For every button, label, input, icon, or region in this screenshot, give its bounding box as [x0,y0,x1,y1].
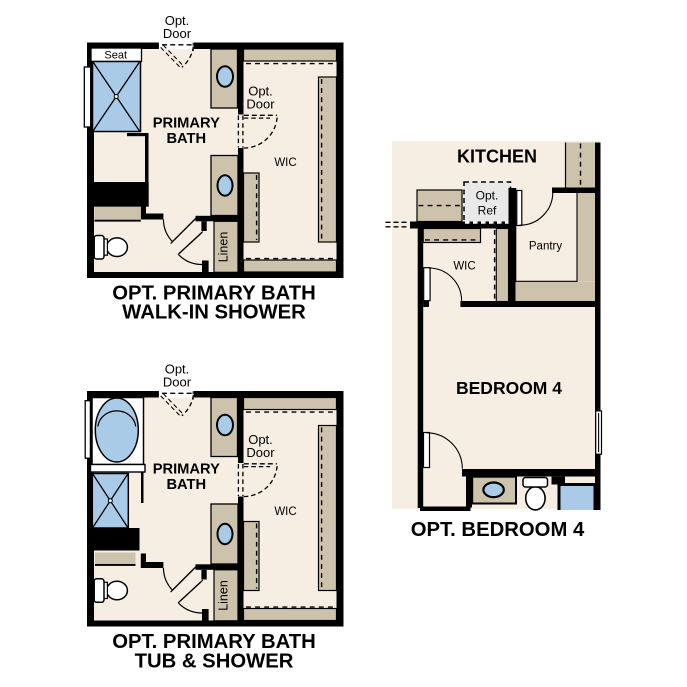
svg-text:BATH: BATH [166,131,206,147]
svg-text:PRIMARY: PRIMARY [153,115,220,131]
svg-text:WIC: WIC [453,260,475,272]
svg-text:OPT. BEDROOM 4: OPT. BEDROOM 4 [411,519,585,541]
svg-text:Pantry: Pantry [529,241,562,253]
svg-text:Door: Door [246,97,275,112]
svg-text:WIC: WIC [274,506,296,518]
svg-text:TUB & SHOWER: TUB & SHOWER [135,651,294,673]
svg-text:KITCHEN: KITCHEN [457,147,537,167]
svg-text:Opt.: Opt. [476,189,499,203]
svg-text:WALK-IN SHOWER: WALK-IN SHOWER [122,302,306,324]
svg-text:Ref: Ref [478,204,497,218]
svg-text:WIC: WIC [274,157,296,169]
svg-text:BATH: BATH [166,477,206,493]
svg-text:Door: Door [163,375,192,390]
svg-text:Door: Door [246,445,275,460]
svg-text:PRIMARY: PRIMARY [153,461,220,477]
svg-text:Door: Door [163,26,192,41]
svg-text:BEDROOM 4: BEDROOM 4 [456,378,562,398]
svg-text:Seat: Seat [104,49,127,61]
